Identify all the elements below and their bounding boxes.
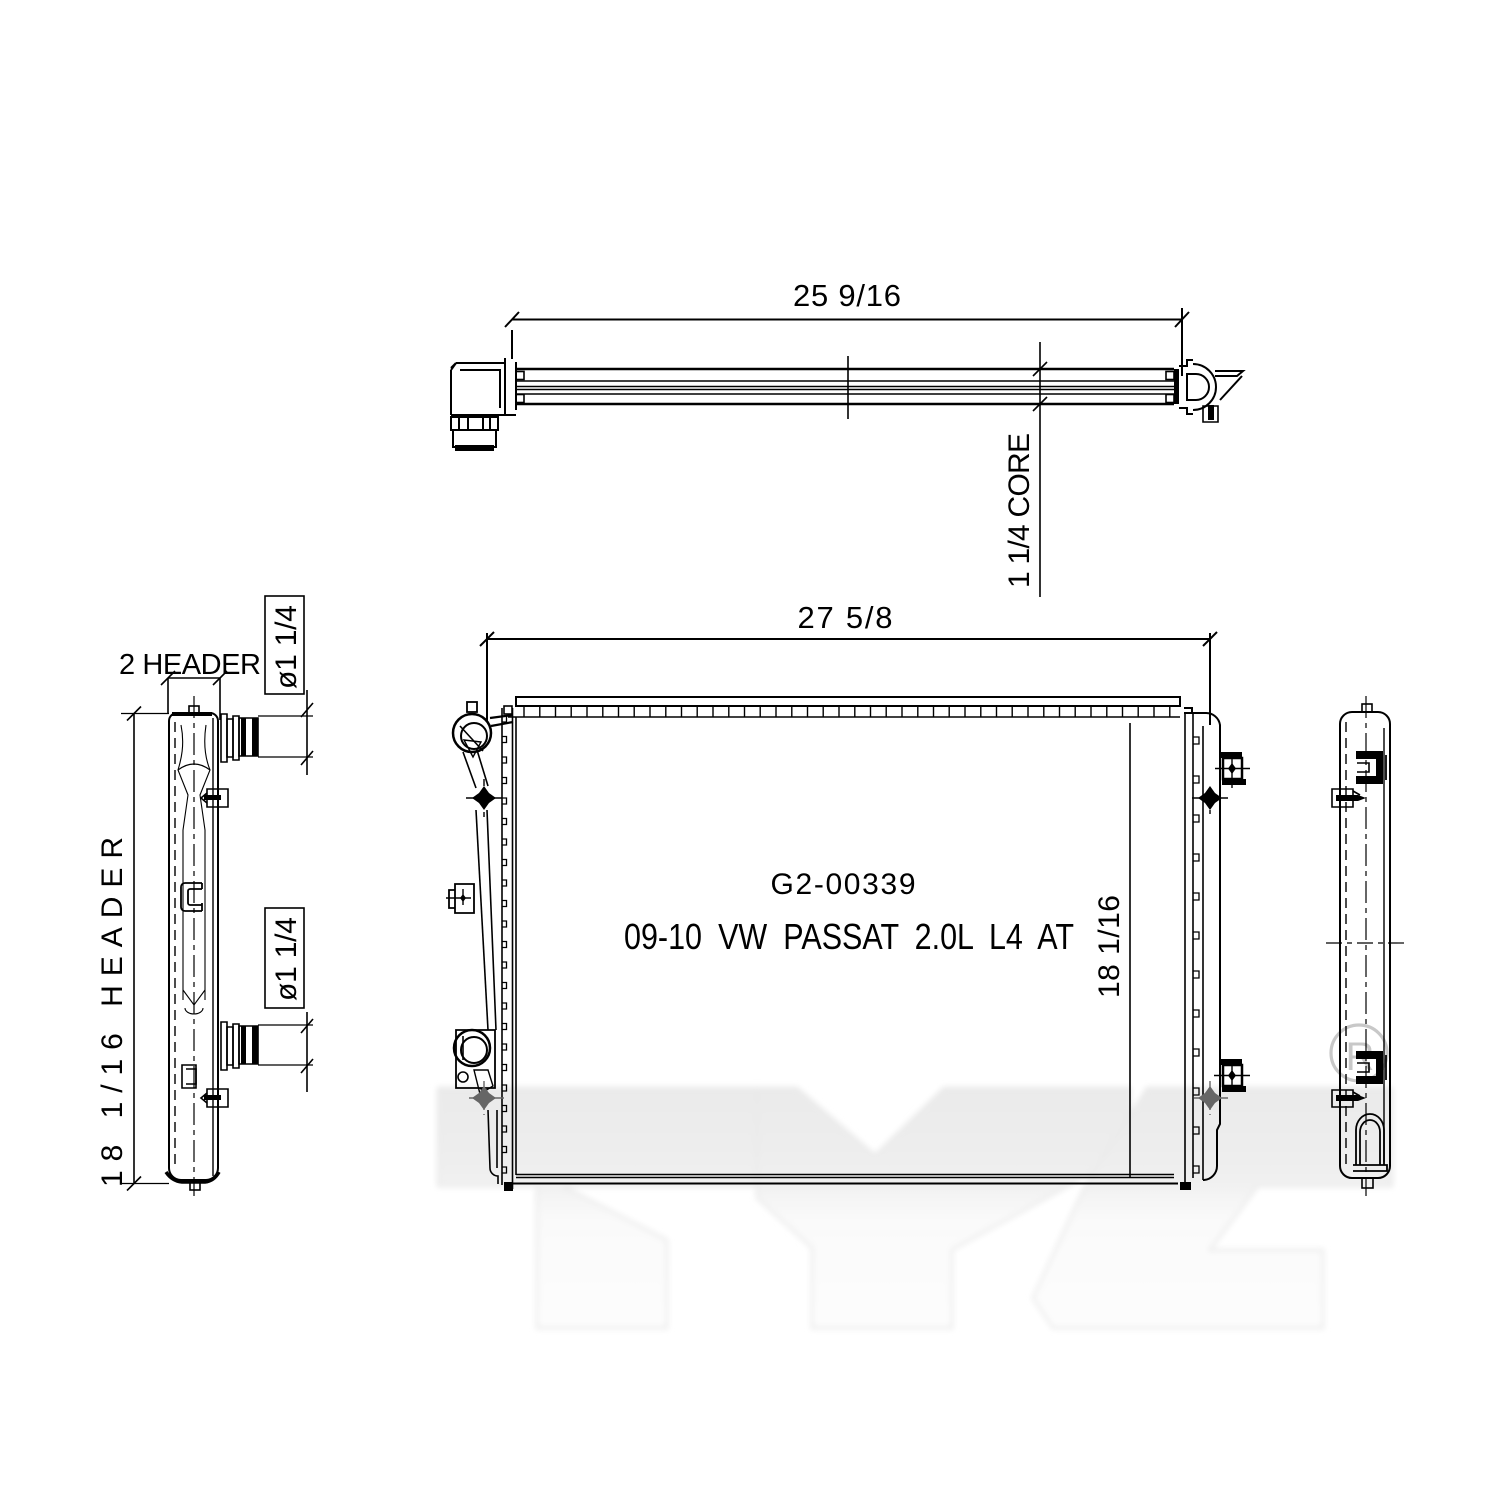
- svg-text:09-10 VW PASSAT 2.0L L4 AT: 09-10 VW PASSAT 2.0L L4 AT: [624, 916, 1074, 957]
- svg-text:G2-00339: G2-00339: [771, 868, 916, 901]
- svg-text:27 5/8: 27 5/8: [798, 600, 893, 635]
- svg-text:2 HEADER: 2 HEADER: [119, 649, 261, 681]
- svg-text:18 1/16: 18 1/16: [1093, 895, 1126, 998]
- svg-text:1 1/4 CORE: 1 1/4 CORE: [1003, 433, 1036, 588]
- svg-text:18 1/16 HEADER: 18 1/16 HEADER: [96, 837, 129, 1187]
- svg-text:ø1 1/4: ø1 1/4: [270, 605, 303, 689]
- svg-text:ø1 1/4: ø1 1/4: [270, 917, 303, 1001]
- svg-text:25 9/16: 25 9/16: [793, 278, 901, 313]
